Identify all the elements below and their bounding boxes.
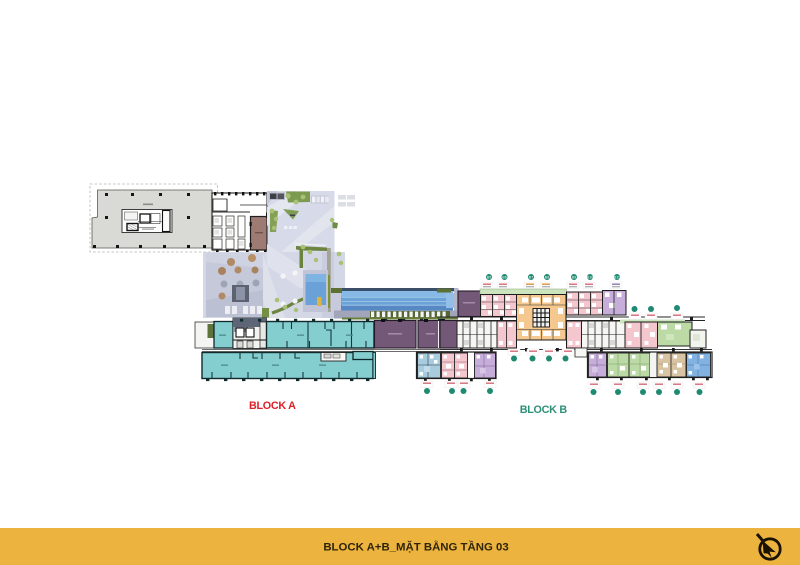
svg-text:BLOCK B: BLOCK B [520,404,568,416]
svg-text:B6: B6 [502,275,506,279]
svg-text:BLOCK A+B_MẶT BẰNG TẦNG 03: BLOCK A+B_MẶT BẰNG TẦNG 03 [323,541,508,554]
svg-text:B7: B7 [529,275,533,279]
svg-text:B5: B5 [487,275,491,279]
svg-text:B11: B11 [614,275,620,279]
svg-text:BLOCK A: BLOCK A [249,400,296,412]
svg-text:B9: B9 [572,275,576,279]
svg-text:B10: B10 [587,275,593,279]
svg-text:B8: B8 [545,275,549,279]
